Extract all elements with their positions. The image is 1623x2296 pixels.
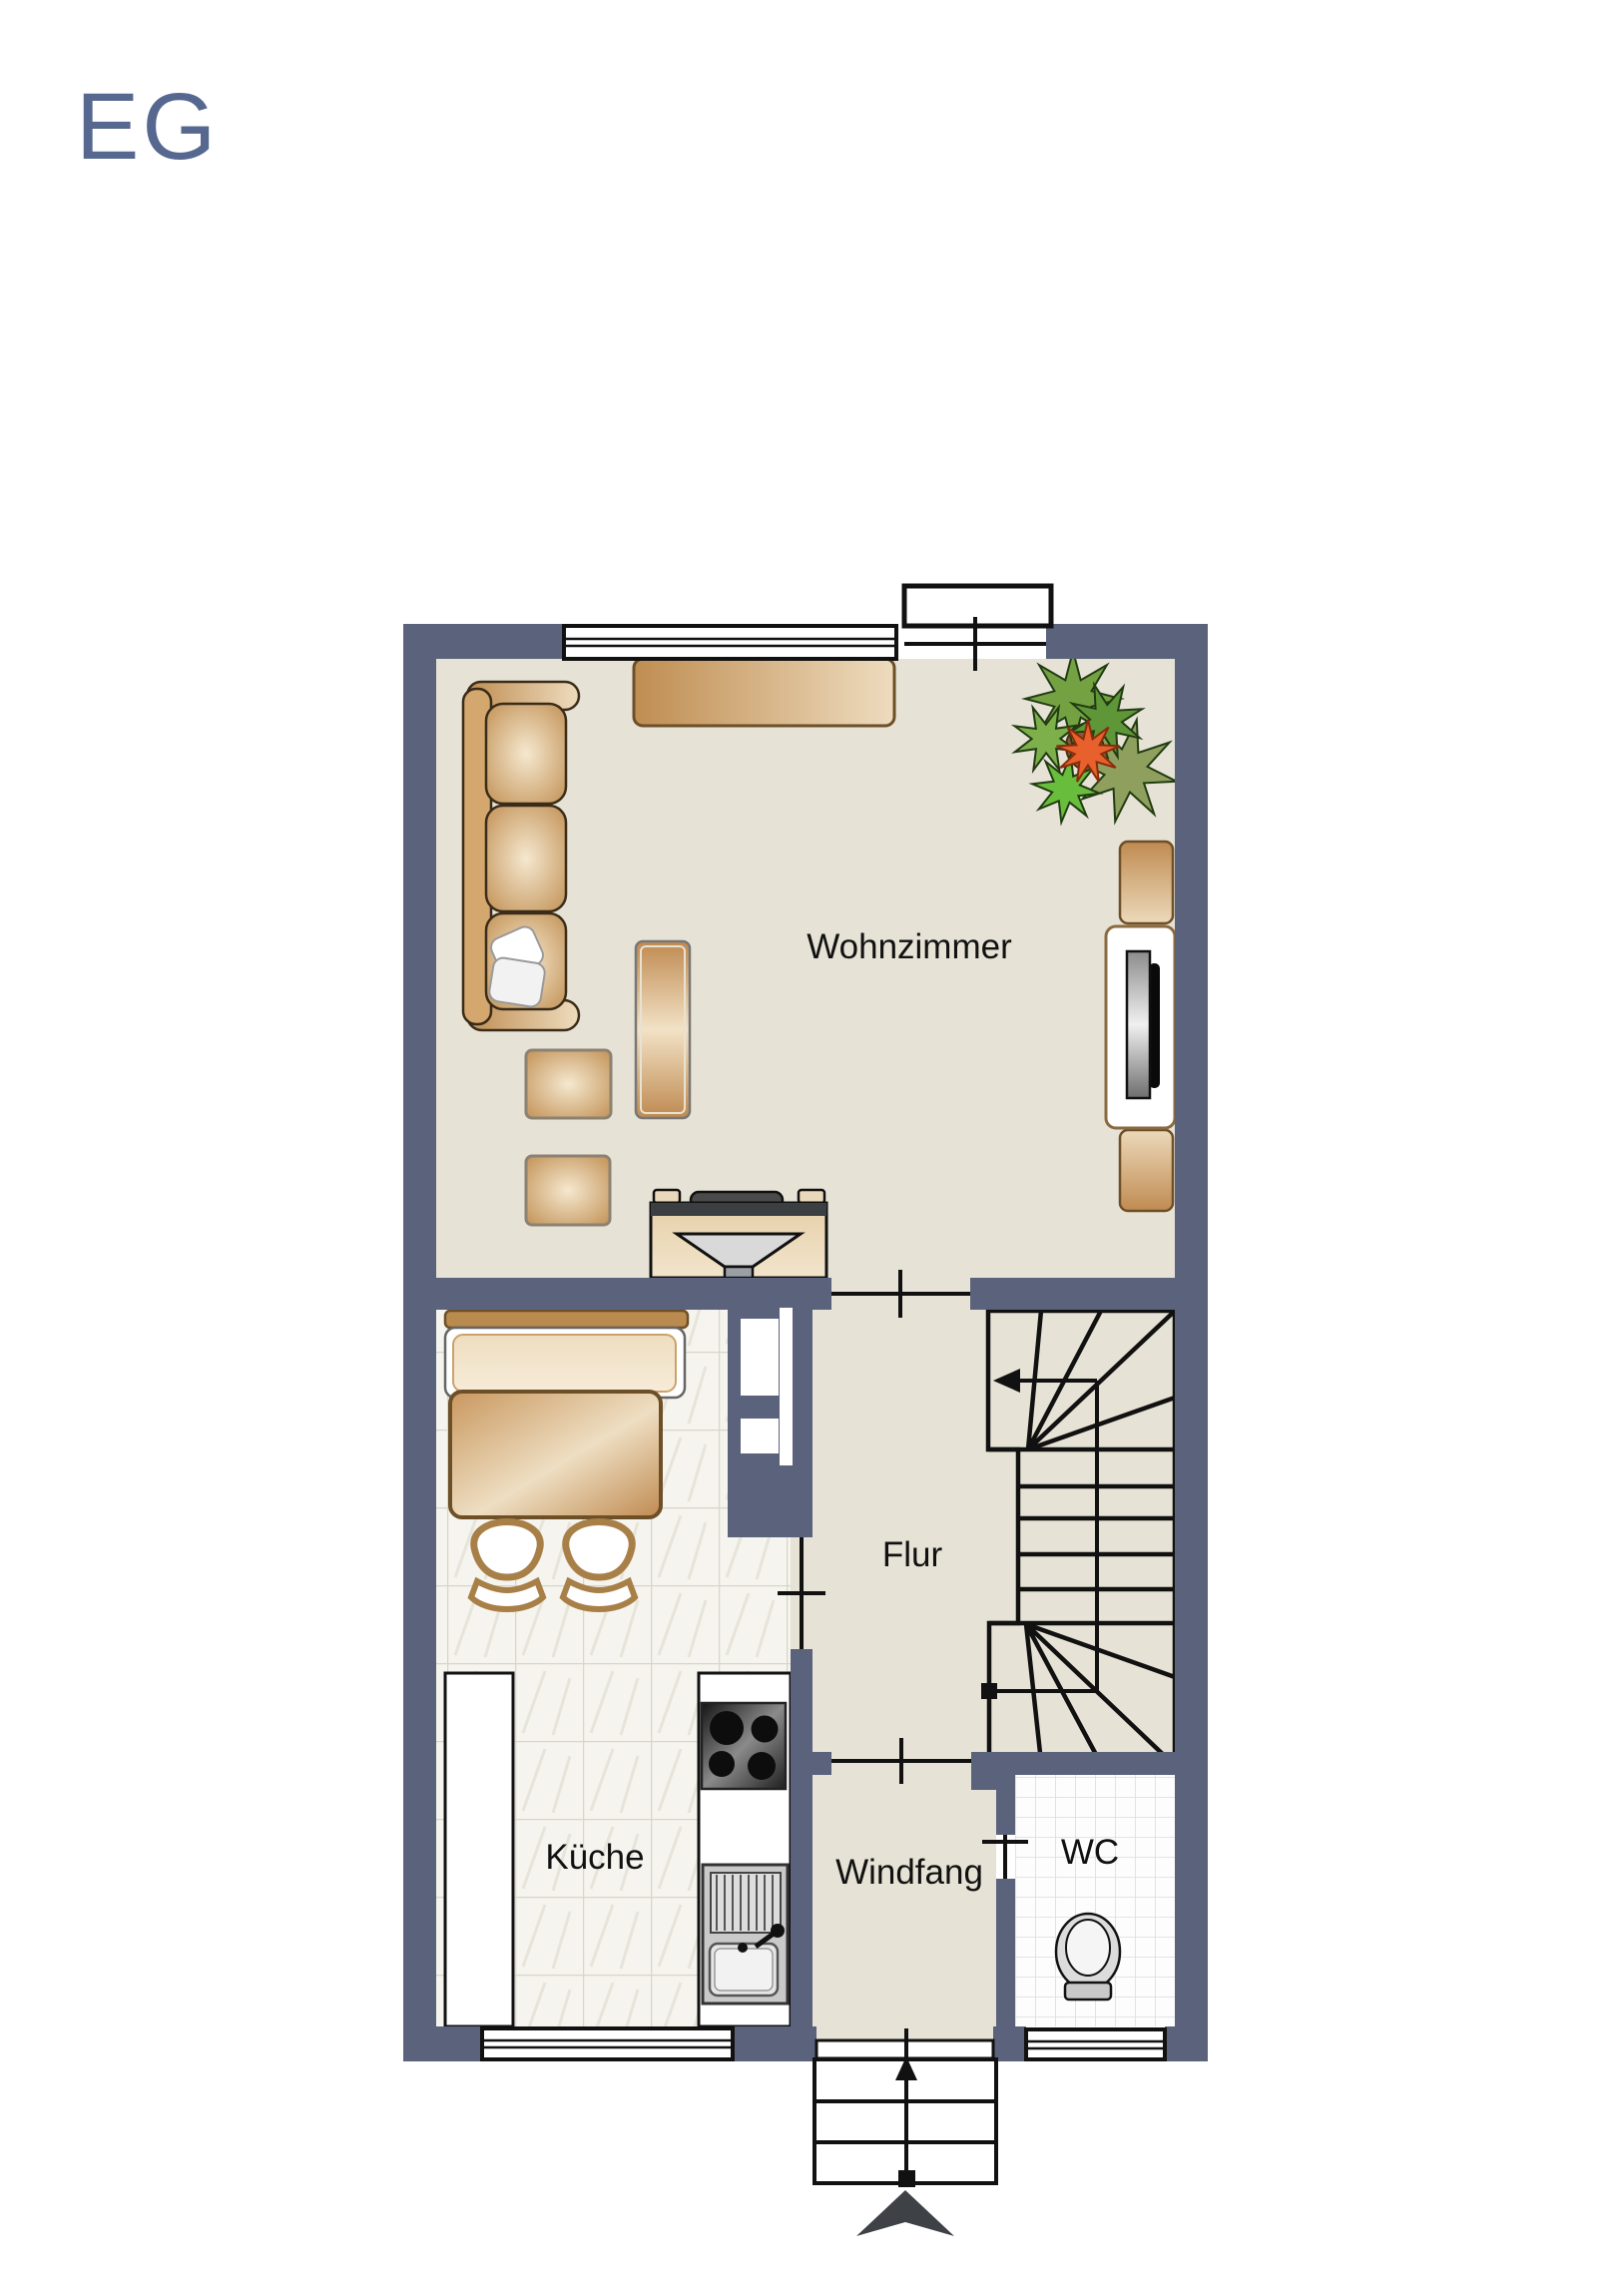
wall-kitchen-windfang [791,1649,812,2026]
wall-flur-windfang [971,1752,1175,1775]
wall-bottom-2 [733,2026,816,2061]
floorplan-page: EG [0,0,1623,2296]
sideboard [634,659,894,726]
room-label-flur: Flur [882,1535,943,1574]
room-label-kueche: Küche [545,1838,644,1877]
side-table-long [636,941,690,1118]
wall-bottom-3 [993,2026,1026,2061]
chimney-shaft-2 [741,1419,779,1453]
stair-start-marker [981,1683,997,1699]
wall-flur-windfang-stub [809,1752,831,1775]
floor-windfang [812,1752,996,2042]
room-label-windfang: Windfang [835,1853,983,1892]
entrance [814,2028,996,2236]
wall-wc-lower [996,1879,1015,2026]
window-wc [1026,2029,1165,2059]
toilet [1056,1914,1120,2000]
wall-living-divider-left [403,1278,831,1310]
wall-top-left [403,624,564,659]
terrace-step-outside [904,586,1051,626]
entrance-direction-chevron [856,2190,954,2236]
window-kitchen [482,2028,733,2059]
wall-left [403,624,436,2061]
stove-cooktop [702,1703,786,1789]
window-top [564,626,896,659]
kitchen-chair [563,1522,635,1610]
tv-screen [1127,951,1160,1098]
ottoman-square-1 [526,1050,611,1118]
kitchen-table [450,1392,661,1517]
sofa [463,682,579,1030]
wall-wc-upper [996,1775,1015,1835]
terrace-door-opening [904,586,1051,671]
kitchen-chair [471,1522,543,1610]
floorplan-drawing: Wohnzimmer Flur Küche Windfang WC [0,0,1623,2296]
wall-right [1175,624,1208,2061]
wall-bottom-4 [1165,2026,1208,2061]
kitchen-sink [703,1865,788,2004]
wall-chimney-block [728,1308,812,1537]
entrance-walkline-start [898,2170,915,2187]
kitchen-bench [445,1311,688,1398]
ottoman-square-2 [526,1156,610,1225]
wall-living-divider-right [970,1278,1175,1310]
kitchen-counter-left [445,1673,513,2026]
wall-bottom-1 [403,2026,482,2061]
chimney-shaft-1 [741,1319,779,1396]
fireplace [651,1190,826,1278]
room-label-wohnzimmer: Wohnzimmer [807,927,1012,966]
room-label-wc: WC [1061,1833,1119,1872]
